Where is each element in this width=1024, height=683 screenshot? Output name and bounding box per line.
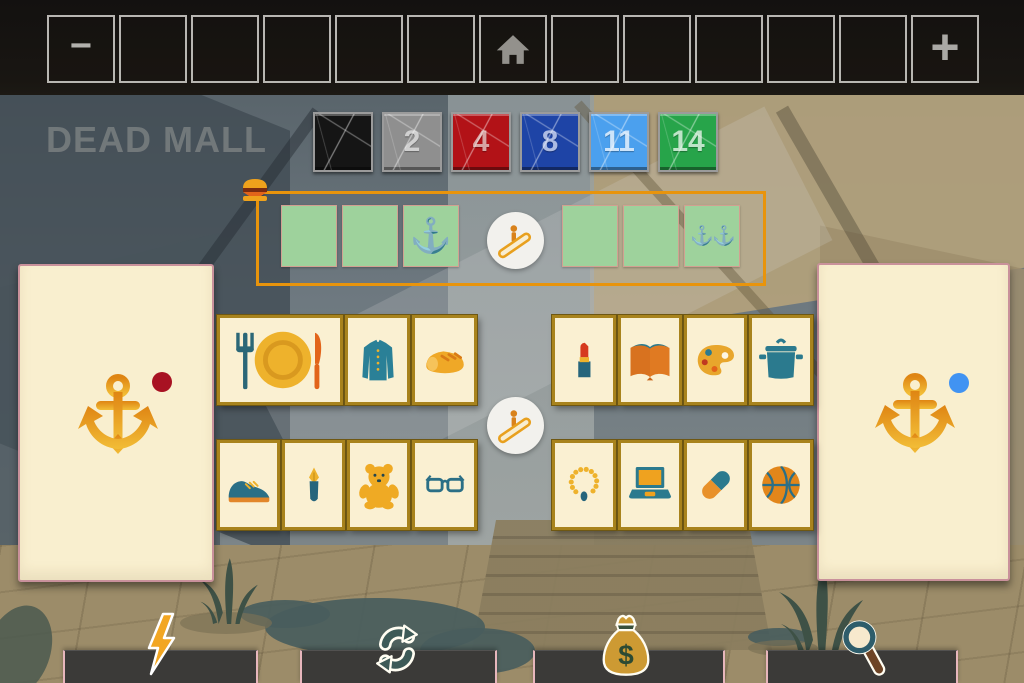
sequence-slot[interactable] — [562, 205, 618, 267]
palette-icon — [690, 336, 742, 384]
double-anchor-icon: ⚓⚓ — [690, 227, 733, 246]
card-shoe[interactable] — [217, 440, 280, 530]
number-tile-row: 2 4 8 11 14 — [313, 112, 718, 172]
plus-icon: + — [930, 22, 959, 72]
home-button[interactable] — [479, 15, 547, 83]
toolbar-slot[interactable] — [263, 15, 331, 83]
tile-number: 4 — [473, 125, 490, 159]
number-tile-11[interactable]: 11 — [589, 112, 649, 172]
toolbar-slot[interactable] — [767, 15, 835, 83]
escalator-icon — [494, 219, 538, 263]
card-laptop[interactable] — [618, 440, 682, 530]
card-pill[interactable] — [684, 440, 747, 530]
escalator-icon — [494, 404, 538, 448]
basketball-icon — [756, 460, 806, 510]
money-bag-icon: $ — [600, 611, 652, 679]
anchor-panel-left[interactable] — [18, 264, 214, 582]
card-book[interactable] — [618, 315, 682, 405]
toolbar-slot[interactable] — [623, 15, 691, 83]
toolbar-slot-row: − + — [47, 15, 979, 83]
pot-icon — [756, 334, 806, 386]
zoom-in-button[interactable]: + — [911, 15, 979, 83]
escalator-badge-middle[interactable] — [487, 397, 544, 454]
toolbar-slot[interactable] — [191, 15, 259, 83]
sequence-slot[interactable] — [281, 205, 337, 267]
home-icon — [495, 33, 531, 66]
card-cooking-pot[interactable] — [749, 315, 813, 405]
sequence-slot-double-anchor[interactable]: ⚓⚓ — [684, 205, 740, 267]
escalator-badge-top[interactable] — [487, 212, 544, 269]
necklace-icon — [560, 458, 608, 512]
zoom-out-button[interactable]: − — [47, 15, 115, 83]
card-shirt[interactable] — [345, 315, 410, 405]
card-teddy-bear[interactable] — [347, 440, 410, 530]
game-stage: DEAD MALL − + 2 4 — [0, 0, 1024, 683]
bread-icon — [420, 335, 470, 385]
book-icon — [624, 334, 676, 386]
sequence-slot[interactable] — [342, 205, 398, 267]
lightning-icon — [140, 612, 180, 676]
card-fountain-pen[interactable] — [282, 440, 345, 530]
teddy-bear-icon — [353, 458, 405, 512]
toolbar-slot[interactable] — [551, 15, 619, 83]
meal-icon — [228, 325, 332, 395]
shoe-icon — [223, 460, 275, 510]
dollar-sign: $ — [618, 640, 634, 671]
card-basketball[interactable] — [749, 440, 813, 530]
dead-mall-sign: DEAD MALL — [46, 119, 267, 161]
card-bread[interactable] — [412, 315, 477, 405]
tile-number: 8 — [542, 125, 559, 159]
pill-icon — [692, 461, 740, 509]
minus-icon: − — [70, 27, 92, 65]
sequence-slot[interactable] — [623, 205, 679, 267]
card-necklace[interactable] — [552, 440, 616, 530]
lipstick-icon — [561, 334, 607, 386]
shirt-icon — [353, 333, 403, 387]
tile-number: 2 — [404, 125, 421, 159]
number-tile-2[interactable]: 2 — [382, 112, 442, 172]
tile-number: 11 — [603, 125, 635, 159]
number-tile-14[interactable]: 14 — [658, 112, 718, 172]
toolbar-slot[interactable] — [839, 15, 907, 83]
toolbar-slot[interactable] — [695, 15, 763, 83]
toolbar-slot[interactable] — [407, 15, 475, 83]
blue-marker-dot — [949, 373, 969, 393]
card-meal[interactable] — [217, 315, 343, 405]
anchor-panel-right[interactable] — [817, 263, 1010, 581]
number-tile-4[interactable]: 4 — [451, 112, 511, 172]
pen-icon — [294, 456, 334, 514]
burger-icon — [241, 177, 269, 203]
glasses-icon — [417, 462, 473, 508]
card-glasses[interactable] — [412, 440, 477, 530]
number-tile-blank[interactable] — [313, 112, 373, 172]
card-paint-palette[interactable] — [684, 315, 747, 405]
anchor-icon: ⚓ — [410, 219, 452, 253]
number-tile-8[interactable]: 8 — [520, 112, 580, 172]
tile-number: 14 — [671, 125, 704, 159]
refresh-icon — [370, 622, 424, 676]
card-lipstick[interactable] — [552, 315, 616, 405]
red-marker-dot — [152, 372, 172, 392]
toolbar-slot[interactable] — [119, 15, 187, 83]
magnifier-icon — [838, 615, 888, 681]
toolbar-slot[interactable] — [335, 15, 403, 83]
sequence-slot-anchor[interactable]: ⚓ — [403, 205, 459, 267]
laptop-icon — [623, 461, 677, 509]
